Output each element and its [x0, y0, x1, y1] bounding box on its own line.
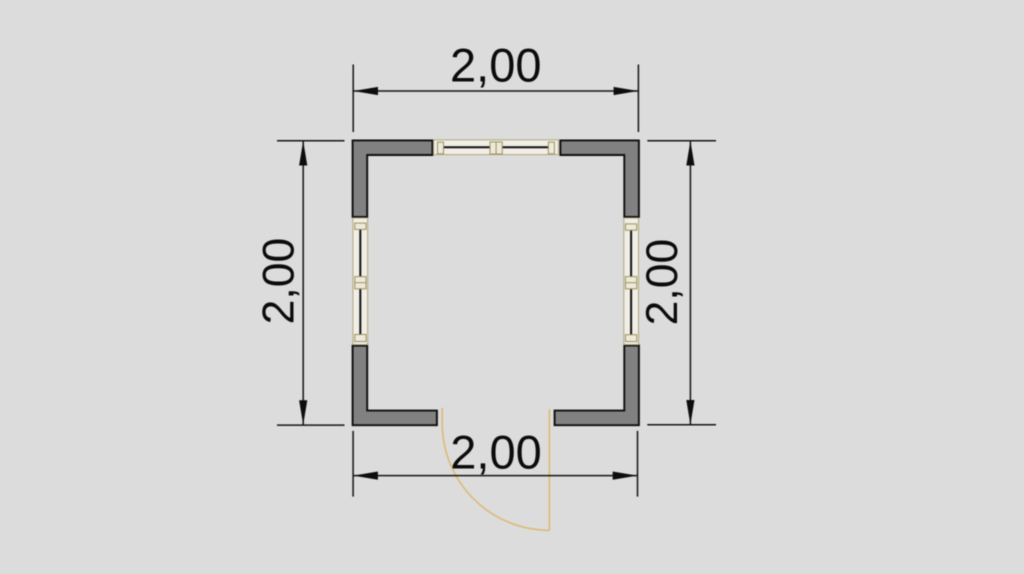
svg-text:2,00: 2,00 — [255, 238, 304, 325]
svg-text:2,00: 2,00 — [638, 239, 687, 326]
svg-text:2,00: 2,00 — [450, 39, 541, 92]
svg-text:2,00: 2,00 — [450, 425, 541, 478]
